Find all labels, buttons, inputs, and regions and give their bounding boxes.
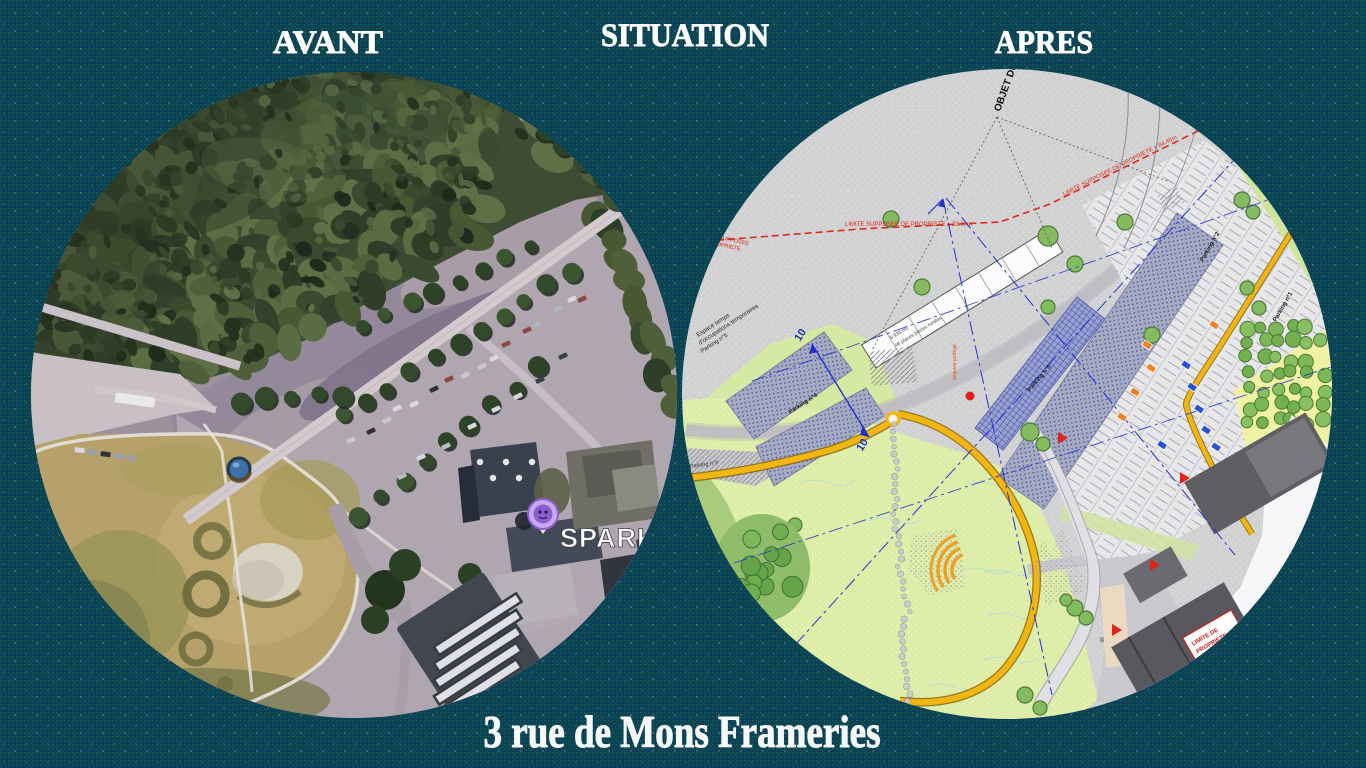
svg-text:séquoia protégé: séquoia protégé: [952, 344, 958, 380]
svg-text:APRES: APRES: [995, 25, 1093, 61]
svg-text:AVANT: AVANT: [273, 25, 383, 61]
svg-text:3 rue de Mons Frameries: 3 rue de Mons Frameries: [484, 707, 881, 757]
svg-text:LIMITE SUPPOSEE DE PROPRIETE ±: LIMITE SUPPOSEE DE PROPRIETE ± 23.00m: [845, 222, 972, 228]
svg-text:SITUATION: SITUATION: [601, 18, 769, 54]
